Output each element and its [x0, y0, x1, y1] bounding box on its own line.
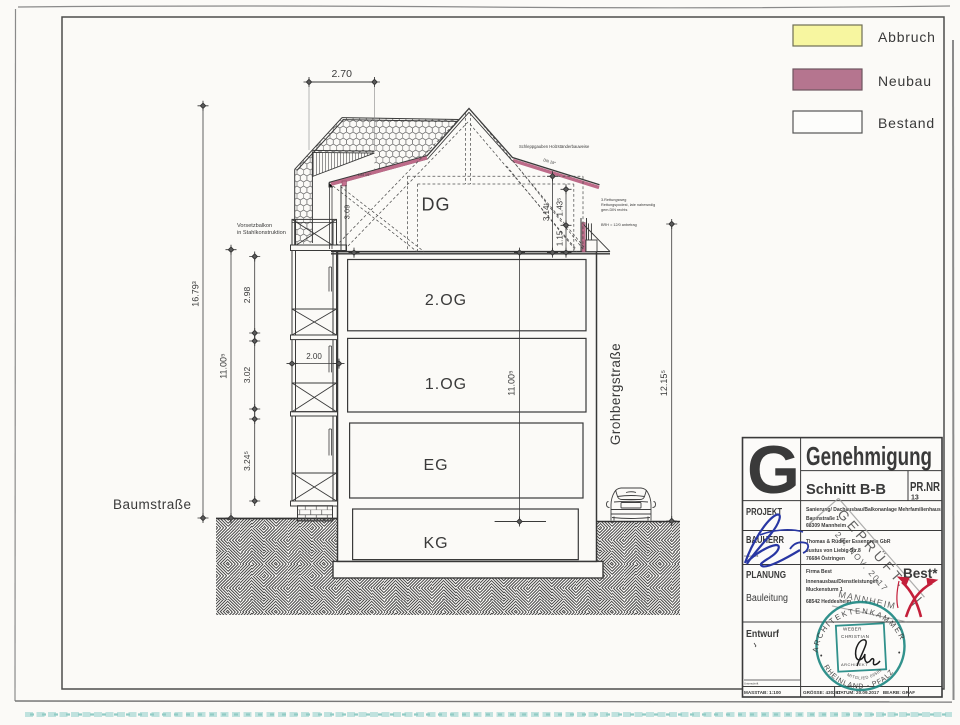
svg-text:Innenausbau/Dienstleistungen: Innenausbau/Dienstleistungen — [806, 579, 879, 585]
svg-text:DATUM: 20.09.2017 BEARB: GRA: DATUM: 20.09.2017 BEARB: GRAF — [837, 690, 915, 695]
svg-text:GRÖSSE: 43026T: GRÖSSE: 43026T — [803, 689, 841, 695]
svg-text:12.15⁵: 12.15⁵ — [659, 370, 669, 397]
svg-text:PR.NR: PR.NR — [910, 479, 940, 494]
svg-text:ARCHITEKT: ARCHITEKT — [841, 662, 868, 667]
svg-text:Unterschrift: Unterschrift — [744, 682, 759, 686]
svg-text:MASSTAB: 1:100: MASSTAB: 1:100 — [744, 690, 781, 695]
svg-text:Baumstraße 1: Baumstraße 1 — [806, 516, 839, 522]
svg-text:2.00: 2.00 — [306, 352, 322, 361]
svg-text:1.OG: 1.OG — [425, 376, 467, 393]
svg-text:Bestand: Bestand — [878, 115, 935, 131]
svg-text:KG: KG — [423, 535, 448, 552]
svg-text:Schnitt B-B: Schnitt B-B — [806, 481, 886, 498]
svg-text:EG: EG — [423, 457, 448, 474]
svg-text:Rettungspodest, late nahewndig: Rettungspodest, late nahewndig — [601, 203, 655, 207]
svg-text:in Stahlkonstruktion: in Stahlkonstruktion — [237, 230, 286, 236]
svg-text:1.15: 1.15 — [556, 230, 565, 246]
svg-text:Baumstraße: Baumstraße — [113, 497, 192, 512]
svg-text:1.43⁵: 1.43⁵ — [556, 198, 565, 217]
svg-text:3.02: 3.02 — [242, 366, 252, 383]
svg-text:68309 Mannheim: 68309 Mannheim — [806, 523, 847, 529]
svg-text:Schleppgauben Holzständerbauw: Schleppgauben Holzständerbauweise — [519, 144, 590, 149]
svg-text:11.00⁵: 11.00⁵ — [219, 353, 229, 379]
svg-text:3.14¹: 3.14¹ — [542, 203, 551, 222]
svg-text:2.70: 2.70 — [331, 68, 352, 80]
svg-text:Entwurf: Entwurf — [746, 628, 779, 640]
svg-text:Genehmigung: Genehmigung — [806, 441, 932, 471]
svg-text:DG: DG — [422, 195, 451, 215]
svg-text:Bauleitung: Bauleitung — [746, 593, 788, 604]
svg-text:Vorsetzbalkon: Vorsetzbalkon — [237, 223, 272, 229]
svg-text:2.98: 2.98 — [242, 286, 252, 303]
svg-text:PLANUNG: PLANUNG — [746, 569, 786, 581]
svg-text:3.09: 3.09 — [343, 205, 352, 220]
svg-text:gem.DIN rechts: gem.DIN rechts — [601, 208, 627, 212]
svg-text:Neubau: Neubau — [878, 73, 932, 89]
svg-text:Firma Best: Firma Best — [806, 569, 832, 575]
svg-text:3.24⁵: 3.24⁵ — [242, 451, 252, 471]
svg-text:16.79³: 16.79³ — [191, 281, 201, 307]
svg-text:Sanierung/ Dachausbau/Balkonan: Sanierung/ Dachausbau/Balkonanlage Mehrf… — [806, 507, 941, 513]
svg-text:2.OG: 2.OG — [425, 292, 467, 309]
svg-text:WEBER: WEBER — [843, 627, 862, 632]
svg-text:CHRISTIAN: CHRISTIAN — [841, 634, 869, 639]
svg-text:11.00⁵: 11.00⁵ — [507, 370, 517, 396]
svg-text:DN 19°: DN 19° — [358, 172, 371, 177]
svg-text:BRH = 12/0 anbetrag: BRH = 12/0 anbetrag — [601, 223, 637, 227]
svg-text:G: G — [747, 432, 800, 508]
svg-text:3.Rettungsweg: 3.Rettungsweg — [601, 198, 626, 202]
svg-text:76684 Östringen: 76684 Östringen — [806, 555, 845, 562]
svg-text:Muckensturm 1: Muckensturm 1 — [806, 587, 843, 593]
svg-text:Grohbergstraße: Grohbergstraße — [608, 343, 623, 445]
svg-text:13: 13 — [911, 495, 919, 502]
svg-text:PROJEKT: PROJEKT — [746, 506, 782, 518]
svg-text:Abbruch: Abbruch — [878, 29, 936, 45]
